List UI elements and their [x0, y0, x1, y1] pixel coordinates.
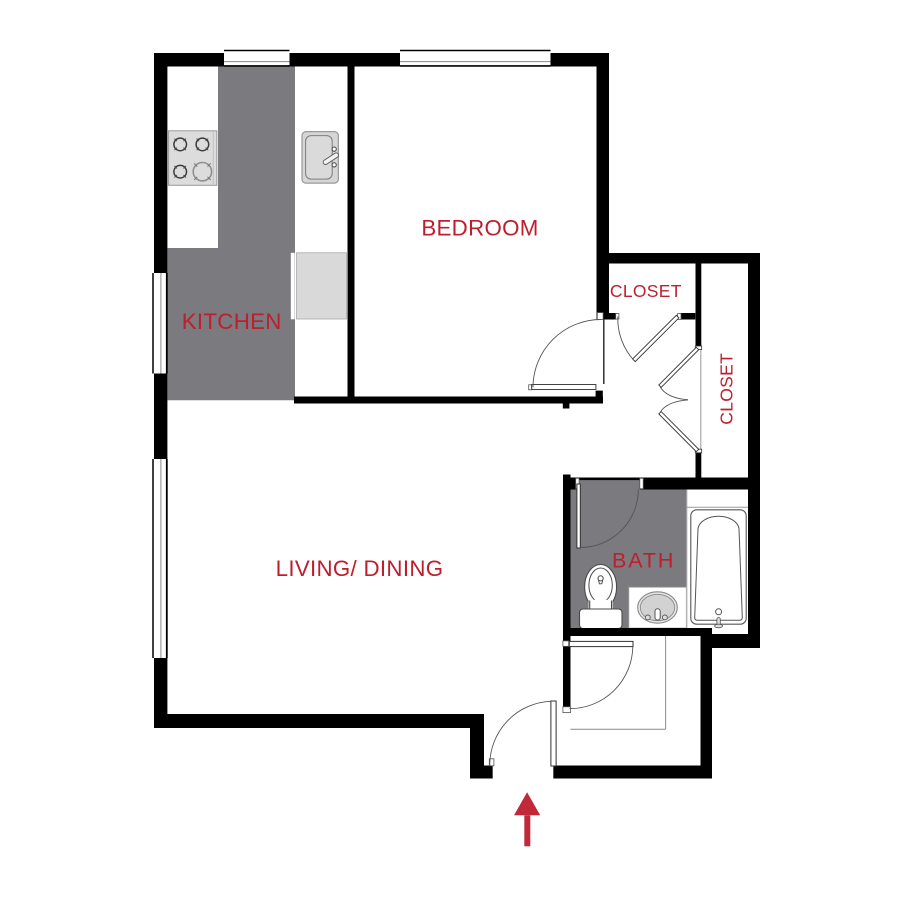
svg-text:CLOSET: CLOSET [610, 281, 682, 301]
svg-text:LIVING/ DINING: LIVING/ DINING [276, 556, 444, 581]
svg-text:KITCHEN: KITCHEN [182, 309, 282, 334]
svg-text:BATH: BATH [612, 548, 675, 572]
svg-text:BEDROOM: BEDROOM [421, 215, 538, 240]
svg-text:CLOSET: CLOSET [716, 353, 736, 425]
